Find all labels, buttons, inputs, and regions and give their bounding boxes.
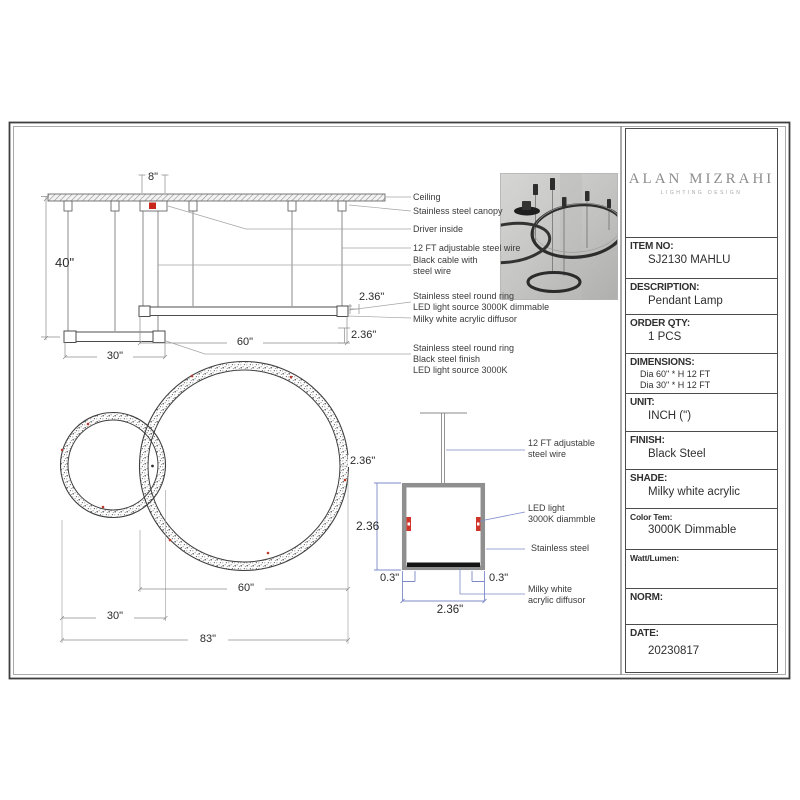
label-section-steel: Stainless steel — [531, 543, 589, 554]
diffusor-strip — [407, 563, 480, 568]
field-value: INCH (") — [626, 408, 777, 422]
center-mark — [151, 465, 154, 468]
field-label: DATE: — [626, 625, 777, 639]
label-driver: Driver inside — [413, 224, 463, 235]
label-ring-top: Stainless steel round ring LED light sou… — [413, 291, 549, 313]
dim-30in-plan: 30" — [96, 610, 134, 622]
field-value: Milky white acrylic — [626, 484, 777, 498]
field-label: NORM: — [626, 589, 777, 603]
dim-236-section-bottom: 2.36" — [427, 604, 473, 616]
field-value: 1 PCS — [626, 329, 777, 343]
field-value: 3000K Dimmable — [626, 522, 777, 536]
panel-row-watt-lumen: Watt/Lumen: — [626, 549, 777, 588]
dim-60in-plan: 60" — [227, 582, 265, 594]
label-line: 3000K diammble — [528, 514, 596, 525]
field-value: 20230817 — [626, 639, 777, 657]
label-line: Stainless steel round ring — [413, 291, 549, 302]
dim-03-left: 0.3" — [378, 572, 401, 584]
dim-03-right: 0.3" — [489, 572, 508, 584]
dim-236-section-left: 2.36 — [356, 519, 379, 533]
ceiling-band — [48, 194, 385, 201]
field-label: ORDER QTY: — [626, 315, 777, 329]
field-label: Watt/Lumen: — [626, 550, 777, 563]
brand-logo: ALAN MIZRAHI LIGHTING DESIGN — [626, 171, 777, 196]
dim-236-top: 2.36" — [359, 291, 384, 303]
plan-view — [60, 362, 350, 645]
label-line: acrylic diffusor — [528, 595, 585, 606]
elevation-dim-lines — [41, 175, 359, 359]
panel-row-norm: NORM: — [626, 588, 777, 624]
field-value: Pendant Lamp — [626, 293, 777, 307]
label-ceiling: Ceiling — [413, 192, 441, 203]
led-connector-dots — [61, 375, 347, 555]
label-line: LED light source 3000K dimmable — [413, 302, 549, 313]
dim-8in: 8" — [139, 171, 167, 183]
panel-row-description: DESCRIPTION: Pendant Lamp — [626, 278, 777, 314]
panel-row-finish: FINISH: Black Steel — [626, 431, 777, 469]
ring-tube-section — [404, 485, 483, 568]
dim-236-plan: 2.36" — [348, 455, 377, 467]
field-label: ITEM NO: — [626, 238, 777, 252]
field-value: Black Steel — [626, 446, 777, 460]
label-line: steel wire — [528, 449, 595, 460]
panel-logo-box: ALAN MIZRAHI LIGHTING DESIGN — [626, 129, 777, 237]
label-black-cable: Black cable with steel wire — [413, 255, 478, 277]
label-adjustable-wire: 12 FT adjustable steel wire — [413, 243, 520, 254]
dim-30in-elev: 30" — [97, 350, 133, 362]
label-section-led: LED light 3000K diammble — [528, 503, 596, 525]
field-label: SHADE: — [626, 470, 777, 484]
brand-tagline: LIGHTING DESIGN — [626, 190, 777, 196]
dim-40in: 40" — [55, 255, 74, 270]
brand-name: ALAN MIZRAHI — [626, 171, 777, 188]
section-wire — [442, 413, 445, 484]
label-canopy: Stainless steel canopy — [413, 206, 503, 217]
label-line: LED light — [528, 503, 596, 514]
field-label: Color Tem: — [626, 509, 777, 522]
field-value — [626, 563, 777, 565]
wire-hangers — [64, 201, 346, 211]
field-value: SJ2130 MAHLU — [626, 252, 777, 266]
dim-83in-plan: 83" — [188, 633, 228, 645]
spec-panel: ALAN MIZRAHI LIGHTING DESIGN ITEM NO: SJ… — [625, 128, 778, 673]
driver-marker — [149, 203, 156, 210]
panel-row-order-qty: ORDER QTY: 1 PCS — [626, 314, 777, 353]
label-line: 12 FT adjustable — [528, 438, 595, 449]
label-line: Milky white — [528, 584, 585, 595]
panel-row-color-temp: Color Tem: 3000K Dimmable — [626, 508, 777, 549]
label-diffusor: Milky white acrylic diffusor — [413, 314, 517, 325]
spec-sheet-page: Ceiling Stainless steel canopy Driver in… — [0, 0, 800, 800]
field-label: DIMENSIONS: — [626, 354, 777, 368]
field-label: FINISH: — [626, 432, 777, 446]
dim-236-bottom: 2.36" — [351, 329, 376, 341]
field-value — [626, 603, 777, 605]
label-section-wire: 12 FT adjustable steel wire — [528, 438, 595, 460]
panel-row-date: DATE: 20230817 — [626, 624, 777, 674]
field-value: Dia 30" * H 12 FT — [626, 380, 777, 391]
label-ring-bottom: Stainless steel round ring Black steel f… — [413, 343, 514, 376]
label-line: Stainless steel round ring — [413, 343, 514, 354]
ring-profiles — [64, 306, 348, 343]
label-line: LED light source 3000K — [413, 365, 514, 376]
panel-row-item-no: ITEM NO: SJ2130 MAHLU — [626, 237, 777, 278]
label-line: steel wire — [413, 266, 478, 277]
field-label: DESCRIPTION: — [626, 279, 777, 293]
panel-row-shade: SHADE: Milky white acrylic — [626, 469, 777, 508]
label-line: Black cable with — [413, 255, 478, 266]
field-value: Dia 60" * H 12 FT — [626, 368, 777, 380]
field-label: UNIT: — [626, 394, 777, 408]
label-section-milky: Milky white acrylic diffusor — [528, 584, 585, 606]
product-photo — [466, 173, 627, 300]
label-line: Black steel finish — [413, 354, 514, 365]
dim-60in-elev: 60" — [227, 336, 263, 348]
panel-row-dimensions: DIMENSIONS: Dia 60" * H 12 FT Dia 30" * … — [626, 353, 777, 393]
panel-row-unit: UNIT: INCH (") — [626, 393, 777, 431]
